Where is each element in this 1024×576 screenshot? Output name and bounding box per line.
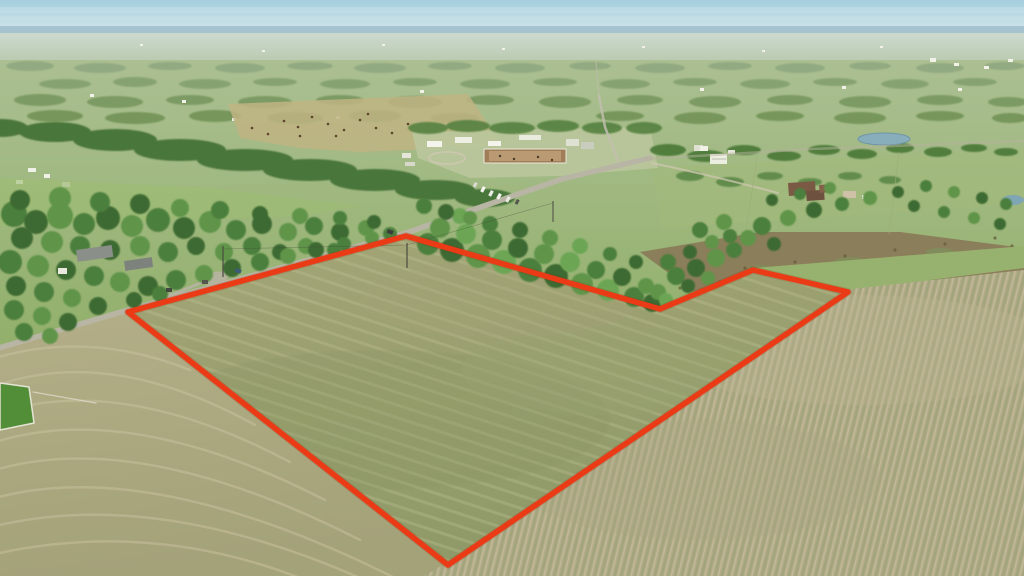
tree-belt-northwest — [279, 223, 297, 241]
arena-livestock — [537, 156, 539, 158]
distant-treerow — [839, 96, 891, 108]
aerial-photo-frame — [0, 0, 1024, 576]
distant-buildings — [502, 48, 505, 50]
east-scattered-trees — [780, 210, 796, 226]
cattle — [311, 116, 314, 119]
facility-buildings — [488, 141, 501, 146]
tree-belt-northwest — [367, 215, 381, 229]
distant-treerow — [953, 78, 997, 86]
distant-treerow — [393, 78, 437, 86]
tree-belt-south — [89, 297, 107, 315]
distant-buildings — [642, 46, 645, 48]
distant-treerow — [539, 96, 591, 108]
tree-belt-northwest — [215, 243, 233, 261]
right-treerow — [961, 144, 987, 152]
facility-buildings — [566, 139, 579, 146]
notch-trees — [683, 245, 697, 259]
distant-treerow — [756, 111, 804, 121]
scrub-brush — [843, 254, 846, 257]
distant-treerow — [916, 111, 964, 121]
tree-belt-northwest — [158, 242, 178, 262]
cloud-streak — [0, 7, 1024, 13]
parked-vehicles — [166, 288, 172, 292]
tree-belt-south — [63, 289, 81, 307]
distant-buildings — [762, 50, 765, 52]
facility-treerow — [408, 122, 448, 134]
cattle — [367, 113, 370, 116]
tree-belt-south — [42, 328, 58, 344]
tree-belt-northwest — [171, 199, 189, 217]
right-treerow — [650, 144, 686, 156]
tree-belt-northwest — [90, 192, 110, 212]
distant-treerow — [740, 79, 790, 89]
east-scattered-trees — [740, 230, 756, 246]
tree-belt-east — [542, 230, 558, 246]
east-scattered-trees — [716, 214, 732, 230]
tree-belt-northwest — [252, 206, 268, 222]
right-treerow — [924, 147, 952, 157]
notch-trees — [726, 242, 742, 258]
right-scattered-trees — [838, 172, 862, 180]
facility-buildings — [402, 153, 411, 158]
tree-belt-east — [572, 238, 588, 254]
distant-treerow — [881, 79, 929, 89]
distant-buildings — [182, 100, 186, 103]
tree-belt-east — [416, 198, 432, 214]
distant-buildings — [90, 94, 94, 97]
east-scattered-trees — [824, 182, 836, 194]
distant-treerow — [287, 62, 333, 70]
tree-belt-northwest — [243, 237, 261, 255]
tree-belt-south — [4, 300, 24, 320]
facility-treerow — [582, 122, 622, 134]
east-scattered-trees — [976, 192, 988, 204]
cattle — [335, 135, 338, 138]
distant-buildings — [28, 168, 36, 172]
east-scattered-trees — [835, 197, 849, 211]
distant-treerow — [320, 79, 370, 89]
distant-treerow — [708, 62, 752, 70]
distant-treerow — [166, 95, 214, 105]
distant-buildings — [1008, 59, 1013, 62]
facility-buildings — [427, 141, 442, 147]
facility-treerow — [489, 122, 535, 134]
cattle — [283, 120, 286, 123]
tree-belt-south — [59, 313, 77, 331]
cattle — [327, 123, 330, 126]
distant-treerow — [428, 62, 472, 70]
distant-buildings — [842, 86, 846, 89]
notch-trees — [707, 249, 725, 267]
east-scattered-trees — [806, 202, 822, 218]
distant-treerow — [617, 95, 663, 105]
tree-belt-east — [534, 244, 554, 264]
tree-belt-northwest — [11, 227, 33, 249]
cattle — [391, 132, 394, 135]
cloud-streak — [0, 16, 1024, 20]
tree-belt-northwest — [226, 220, 246, 240]
cattle — [267, 133, 270, 136]
tree-belt-east — [456, 224, 476, 244]
east-scattered-trees — [794, 188, 806, 200]
facility-buildings — [519, 135, 541, 140]
distant-treerow — [148, 62, 192, 70]
arena-livestock — [499, 155, 501, 157]
notch-trees — [723, 229, 737, 243]
facility-buildings — [455, 137, 472, 143]
distant-treerow — [253, 78, 297, 86]
distant-treerow — [105, 112, 165, 124]
notch-trees — [660, 254, 676, 270]
distant-buildings — [44, 174, 50, 178]
distant-buildings — [880, 46, 883, 48]
east-scattered-trees — [1000, 198, 1012, 210]
tree-belt-east — [512, 222, 528, 238]
tree-belt-northwest — [187, 237, 205, 255]
tree-belt-east — [629, 255, 643, 269]
distant-treerow — [813, 78, 857, 86]
tree-belt-south — [27, 255, 49, 277]
tree-belt-south — [280, 248, 296, 264]
aerial-parcel-photo — [0, 0, 1024, 576]
cattle — [297, 126, 300, 129]
tree-belt-east — [438, 204, 454, 220]
white-barn — [700, 146, 708, 151]
tree-belt-northwest — [130, 194, 150, 214]
cattle — [251, 127, 254, 130]
tree-belt-northwest — [146, 208, 170, 232]
facility-treerow — [446, 120, 490, 132]
tree-belt-northwest — [10, 190, 30, 210]
cattle — [343, 129, 346, 132]
tree-belt-northwest — [130, 236, 150, 256]
tree-belt-south — [34, 282, 54, 302]
distant-treerow — [775, 63, 825, 73]
cattle — [359, 119, 362, 122]
distant-treerow — [27, 110, 83, 122]
distant-treerow — [985, 62, 1024, 70]
distant-buildings — [954, 63, 959, 66]
tree-belt-northwest — [49, 187, 71, 209]
tree-belt-east — [463, 211, 477, 225]
distant-buildings — [262, 50, 265, 52]
arena-livestock — [551, 159, 553, 161]
distant-treerow — [74, 63, 126, 73]
distant-treerow — [113, 77, 157, 87]
notch-trees — [705, 235, 719, 249]
distant-treerow — [834, 112, 886, 124]
tree-belt-northwest — [292, 208, 308, 224]
tree-belt-east — [482, 230, 502, 250]
cattle — [407, 123, 410, 126]
pond — [858, 133, 910, 145]
tree-belt-south — [251, 253, 269, 271]
distant-treerow — [14, 94, 66, 106]
distant-treerow — [460, 79, 510, 89]
distant-buildings — [984, 66, 989, 69]
distant-treerow — [354, 63, 406, 73]
distant-treerow — [673, 78, 717, 86]
right-scattered-trees — [757, 172, 783, 180]
fenced-pen — [0, 383, 34, 430]
scrub-brush — [943, 242, 946, 245]
tree-belt-northwest — [305, 217, 323, 235]
large-house — [843, 191, 856, 198]
tree-belt-northwest — [333, 211, 347, 225]
distant-buildings — [930, 58, 936, 62]
tree-belt-northwest — [73, 213, 95, 235]
tree-belt-east — [560, 252, 580, 272]
cattle — [375, 127, 378, 130]
east-scattered-trees — [908, 200, 920, 212]
notch-trees — [681, 279, 695, 293]
east-scattered-trees — [766, 194, 778, 206]
scrub-brush — [793, 260, 796, 263]
distant-treerow — [635, 63, 685, 73]
cattle — [299, 135, 302, 138]
east-scattered-trees — [692, 222, 708, 238]
distant-buildings — [382, 44, 385, 46]
right-scattered-trees — [676, 171, 704, 181]
facility-treerow — [626, 122, 662, 134]
tree-belt-east — [587, 261, 605, 279]
distant-treerow — [917, 95, 963, 105]
distant-treerow — [849, 62, 891, 70]
tree-belt-south — [223, 259, 241, 277]
scrub-brush — [893, 248, 896, 251]
tree-belt-south — [33, 307, 51, 325]
tree-belt-east — [613, 268, 631, 286]
east-scattered-trees — [753, 217, 771, 235]
east-scattered-trees — [994, 218, 1006, 230]
distant-treerow — [767, 95, 813, 105]
tree-belt-northwest — [41, 231, 63, 253]
tree-belt-east — [430, 218, 450, 238]
distant-buildings — [700, 88, 704, 91]
east-scattered-trees — [920, 180, 932, 192]
east-scattered-trees — [948, 186, 960, 198]
arena-livestock — [513, 158, 515, 160]
right-treerow — [994, 148, 1018, 156]
distant-treerow — [600, 79, 650, 89]
east-scattered-trees — [892, 186, 904, 198]
facility-buildings — [405, 162, 415, 166]
facility-treerow — [537, 120, 579, 132]
tree-belt-south — [110, 272, 130, 292]
tree-belt-east — [508, 238, 528, 258]
distant-treerow — [6, 61, 54, 71]
distant-buildings — [958, 88, 962, 91]
east-scattered-trees — [938, 206, 950, 218]
tree-belt-south — [15, 323, 33, 341]
distant-treerow — [87, 96, 143, 108]
east-scattered-trees — [863, 191, 877, 205]
distant-buildings — [140, 44, 143, 46]
tree-belt-east — [603, 247, 617, 261]
distant-treerow — [215, 63, 265, 73]
facility-buildings — [581, 142, 594, 149]
distant-treerow — [689, 96, 741, 108]
tree-belt-south — [84, 266, 104, 286]
tree-belt-northwest — [173, 217, 195, 239]
distant-treerow — [533, 78, 577, 86]
distant-treerow — [569, 62, 611, 70]
distant-buildings — [420, 90, 424, 93]
distant-treerow — [674, 112, 726, 124]
east-scattered-trees — [968, 212, 980, 224]
left-houses — [58, 268, 67, 274]
scrub-brush — [993, 236, 996, 239]
tree-belt-south — [166, 270, 186, 290]
tree-belt-northwest — [121, 215, 143, 237]
east-scattered-trees — [767, 237, 781, 251]
right-scattered-trees — [879, 176, 901, 184]
distant-treerow — [39, 79, 91, 89]
right-treerow — [847, 149, 877, 159]
tree-belt-east — [482, 216, 498, 232]
parked-vehicles — [202, 280, 208, 284]
tree-belt-south — [6, 276, 26, 296]
distant-treerow — [179, 79, 231, 89]
distant-treerow — [495, 63, 545, 73]
tree-belt-northwest — [211, 201, 229, 219]
